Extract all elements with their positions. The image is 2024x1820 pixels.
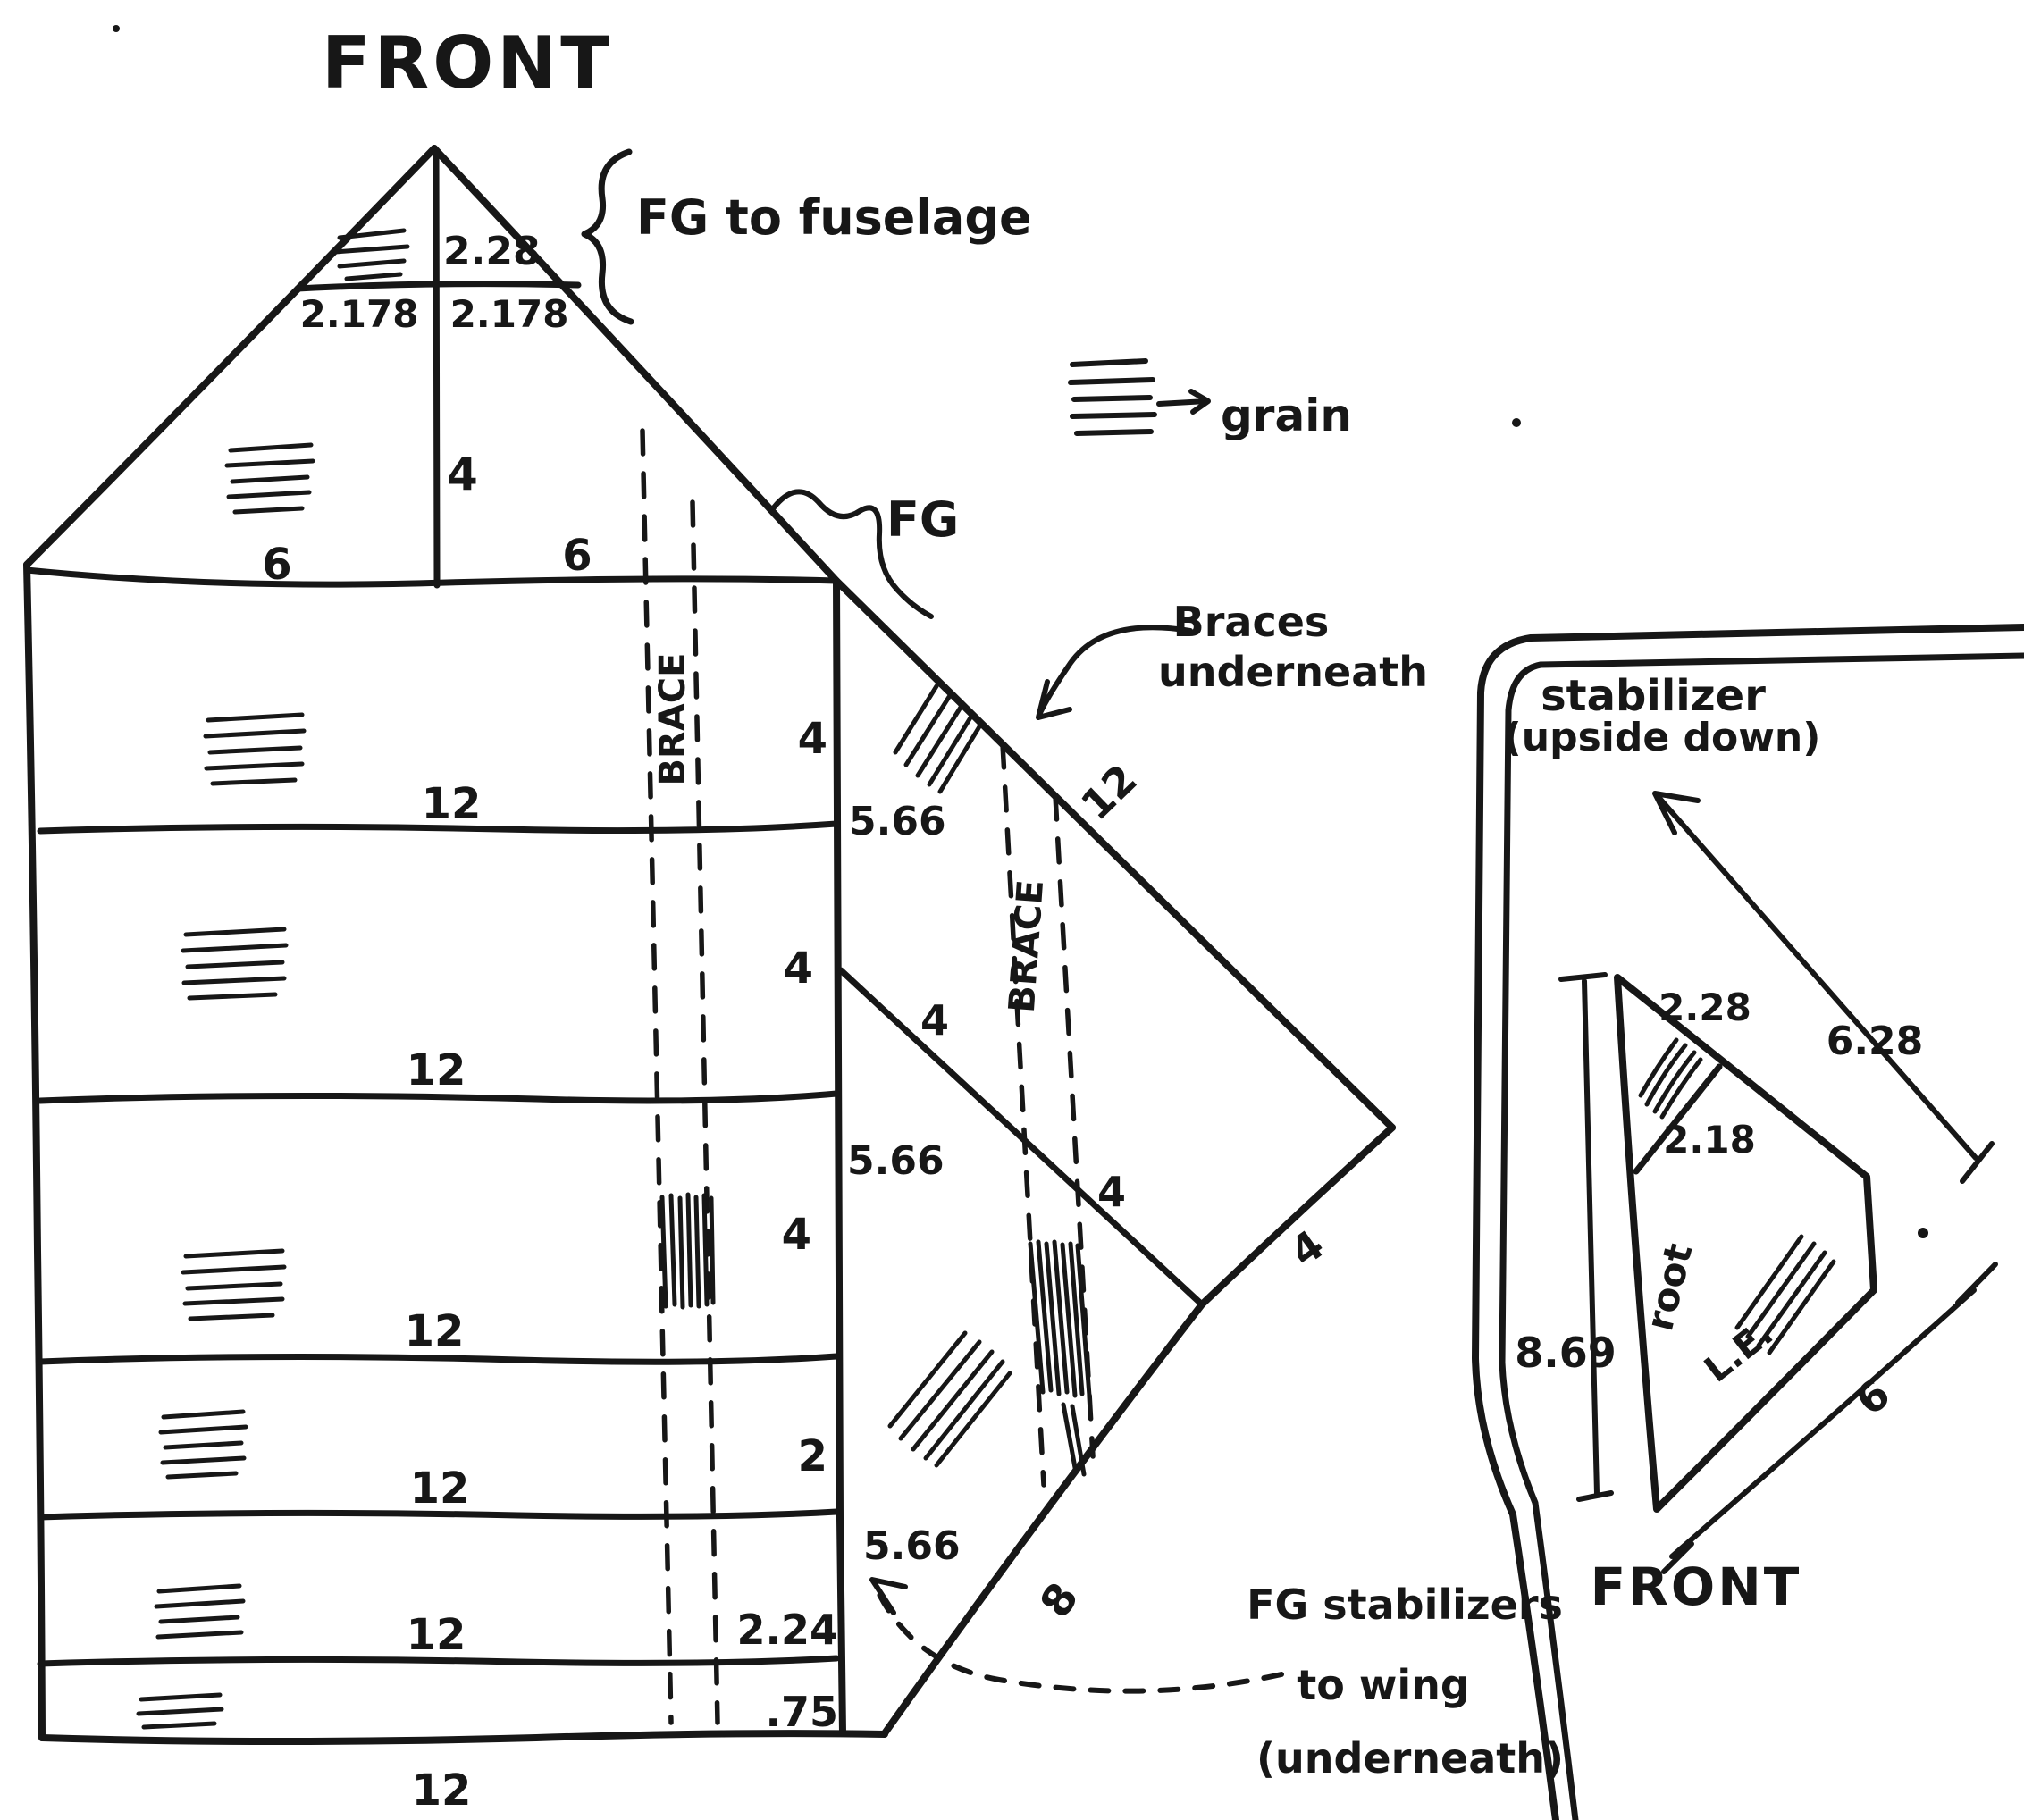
bias-lower-grain-hatch [890,1333,1010,1465]
stab-root-label: root [1637,1239,1701,1335]
bias-leading-grain-hatch [895,686,981,792]
annotations: FG to fuselage FG Braces underneath FG s… [584,152,1564,1782]
panel-top-line [27,570,836,584]
outside-length-label: 5.66 [849,799,946,844]
grain-hatch [139,1695,222,1727]
panel-brace-label: BRACE [652,653,693,786]
panel-brace-dash-left [642,431,671,1723]
stray-mark [113,25,120,32]
strip-height-label: 2.24 [737,1606,839,1654]
grain-hatch [156,1586,243,1637]
fg-stab-arrowhead-icon [872,1580,905,1613]
fg-label: FG [886,491,959,548]
bias-lower-edge-label: 8 [1030,1574,1088,1627]
dim-line-root [1561,975,1611,1499]
outside-length-label: 5.66 [863,1523,961,1569]
bias-lower-edge-lower [885,1304,1202,1733]
rib-width-label: 12 [412,1765,472,1816]
bias-brace-label: BRACE [1002,878,1052,1014]
grain-hatch [183,1251,284,1319]
outside-length-label: 5.66 [847,1138,945,1184]
rib-width-label: 12 [410,1464,470,1514]
triangle-half-left: 2.178 [300,292,419,336]
edge-height-labels: 4 4 4 2 2.24 .75 [737,714,839,1736]
stab-root-height-dim: 8.69 [1515,1329,1617,1377]
stab-inner-dim: 2.18 [1663,1118,1756,1162]
fg-stab-note-line3: (underneath) [1256,1734,1564,1782]
braces-note-line1: Braces [1173,598,1330,646]
grain-arrow-icon [1159,391,1208,412]
fg-stab-note-line1: FG stabilizers [1247,1581,1563,1629]
stray-mark [1918,1228,1928,1238]
front-title-top: FRONT [322,21,613,105]
strip-height-label: 2 [798,1431,827,1481]
strip-height-label: .75 [766,1688,839,1736]
stabilizer-drawing: stabilizer (upside down) 2.28 2.18 6.28 … [1504,671,1995,1572]
bias-edge-label: 4 [1281,1220,1333,1277]
bias-rib-line [841,970,1202,1304]
fg-stab-note-line2: to wing [1297,1661,1470,1709]
strip-height-label: 4 [798,714,827,764]
stab-top-edge-dim: 6.28 [1827,1019,1924,1064]
front-title-bottom: FRONT [1591,1556,1802,1617]
triangle-left-slope [27,148,434,565]
grain-hatch [161,1412,246,1477]
top-width-right: 6 [562,531,592,581]
grain-hatch [206,715,304,784]
bias-rib-label: 4 [920,996,949,1044]
brace-strip-grain-hatch [662,1195,713,1307]
grain-legend-hatch-icon [1071,361,1155,433]
braces-note-line2: underneath [1158,648,1428,696]
grain-legend: grain [1071,361,1352,441]
top-width-left: 6 [262,540,291,590]
bias-labels: 12 4 4 4 8 [920,755,1332,1627]
sketch-sheet: grain FG to fuselage FG Braces underneat… [0,0,2024,1820]
wing-panel-outline [27,148,1392,1741]
triangle-center-line [436,150,437,585]
grain-hatch [335,231,407,279]
stab-le-length-dim: 6 [1846,1370,1899,1425]
panel-brace-dash-right [693,502,718,1723]
rib-width-label: 12 [407,1610,466,1660]
rib-line [40,1356,836,1362]
grain-hatch [183,929,286,998]
panel-left-edge [27,565,42,1738]
trailing-edge-inner [1502,656,2024,1820]
bias-lower-edge-upper [1202,1128,1392,1304]
strip-height-label: 4 [784,944,813,994]
curly-brace-icon [584,152,631,322]
rib-width-label: 12 [422,779,482,829]
panel-right-edge [836,581,843,1732]
wing-plan-sketch: grain FG to fuselage FG Braces underneat… [0,0,2024,1820]
triangle-half-right: 2.178 [450,292,569,336]
panel-bottom-edge [42,1733,885,1741]
grain-hatch [227,445,313,512]
trailing-edge-outer [1475,627,2024,1820]
wing-trailing-edge [1475,627,2024,1820]
bias-rib-label: 4 [1097,1168,1126,1216]
fg-fuselage-note: FG to fuselage [636,189,1032,246]
triangle-apex-height: 2.28 [443,229,541,274]
dim-line-le [1664,1264,1995,1572]
stabilizer-note-line1: stabilizer [1541,671,1766,721]
triangle-center-height: 4 [447,449,478,500]
stray-mark [1512,418,1521,427]
grain-label: grain [1221,390,1352,441]
rib-width-label: 12 [405,1306,465,1356]
stab-tip-height: 2.28 [1659,985,1751,1029]
rib-width-label: 12 [407,1045,466,1095]
strip-height-label: 4 [782,1210,811,1260]
stabilizer-note-line2: (upside down) [1504,715,1821,760]
